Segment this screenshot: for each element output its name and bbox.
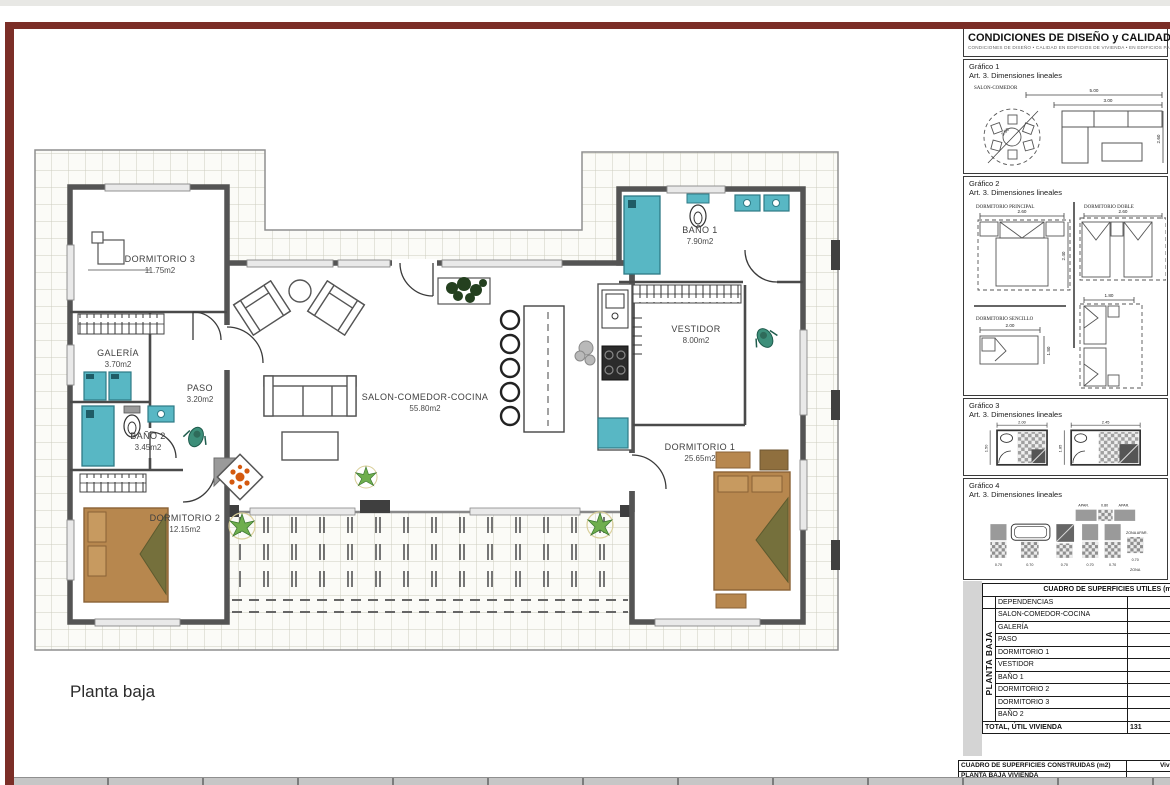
sofa — [264, 376, 356, 416]
room-area-vestidor: 8.00m2 — [683, 336, 710, 345]
superficies-utiles-table: CUADRO DE SUPERFICIES UTILES (m DEPENDEN… — [982, 583, 1170, 734]
maroon-frame-top — [5, 22, 1170, 29]
room-label-dormitorio2: DORMITORIO 2 — [150, 513, 221, 523]
utiles-total-label: TOTAL, ÚTIL VIVIENDA — [983, 721, 1128, 734]
grafico1-title: Gráfico 1 — [969, 62, 1167, 71]
grafico-3: Gráfico 3 Art. 3. Dimensiones lineales 2… — [963, 398, 1168, 476]
side-table — [289, 280, 311, 302]
grafico-4: Gráfico 4 Art. 3. Dimensiones lineales A… — [963, 478, 1168, 580]
dim-label: 2.00 — [1018, 420, 1026, 424]
room-area-bano1: 7.90m2 — [687, 237, 714, 246]
grafico1-subtitle: Art. 3. Dimensiones lineales — [969, 71, 1167, 80]
dim-label: APAR. — [1078, 503, 1089, 507]
dim-label: 1.80 — [1105, 293, 1114, 298]
dim-label: APAR. — [1119, 503, 1130, 507]
floor-plan: DORMITORIO 3 11.75m2 GALERÍA 3.70m2 PASO… — [0, 0, 963, 785]
utiles-side-label: PLANTA BAJA — [983, 609, 996, 722]
bed-dormitorio1 — [714, 450, 790, 608]
maroon-frame-left — [5, 22, 14, 785]
room-label-bano1: BAÑO 1 — [682, 225, 717, 235]
grafico4-subtitle: Art. 3. Dimensiones lineales — [969, 490, 1167, 499]
dim-label: 5.00 — [1090, 88, 1099, 93]
room-label-dormitorio3: DORMITORIO 3 — [125, 254, 196, 264]
utiles-col-dependencias: DEPENDENCIAS — [996, 596, 1128, 609]
panel-subtitle: CONDICIONES DE DISEÑO • CALIDAD EN EDIFI… — [964, 44, 1167, 50]
grafico1-room-label: SALON-COMEDOR — [974, 86, 1018, 91]
room-area-dormitorio3: 11.75m2 — [145, 266, 176, 275]
dim-label: 2.60 — [1018, 209, 1027, 214]
dim-label: 3.00 — [1104, 98, 1113, 103]
room-area-dormitorio1: 25.65m2 — [684, 454, 716, 463]
room-label-bano2: BAÑO 2 — [130, 431, 165, 441]
stove — [602, 346, 628, 380]
table-row: PASO — [996, 634, 1128, 647]
table-row: DORMITORIO 3 — [996, 696, 1128, 709]
grafico4-drawing: APAR. 0.80 APAR. 0.70 0.70 0.70 0.70 0.7… — [966, 500, 1166, 574]
grafico4-title: Gráfico 4 — [969, 481, 1167, 490]
room-label-vestidor: VESTIDOR — [671, 324, 720, 334]
dim-label: 0.70 — [1109, 563, 1116, 567]
dim-label: 2.45 — [1102, 420, 1110, 424]
dim-label: 0.80 — [1101, 503, 1108, 507]
panel-header: CONDICIONES DE DISEÑO y CALIDAD (DC-0 CO… — [963, 28, 1168, 57]
utiles-col-vivienda: Vivien — [1128, 596, 1170, 609]
grafico2-sencillo-label: DORMITORIO SENCILLO — [976, 317, 1034, 322]
dim-label: 2.40 — [1061, 251, 1066, 260]
porch-pergola — [227, 500, 632, 612]
entrance-planter — [438, 277, 490, 304]
table-row: VESTIDOR — [996, 659, 1128, 672]
scanned-plan-page: DORMITORIO 3 11.75m2 GALERÍA 3.70m2 PASO… — [0, 0, 1170, 785]
kitchen-sink — [602, 290, 628, 328]
dim-label: 1.50 — [984, 444, 989, 452]
dim-label: 0.70 — [995, 563, 1002, 567]
room-area-salon: 55.80m2 — [409, 404, 441, 413]
table-row: DORMITORIO 1 — [996, 646, 1128, 659]
construidas-title: CUADRO DE SUPERFICIES CONSTRUIDAS (m2) — [959, 761, 1127, 772]
grafico2-drawing: DORMITORIO PRINCIPAL 2.60 2.40 DORMITORI… — [966, 198, 1166, 390]
coffee-table — [282, 432, 338, 460]
dim-label: 0.70 — [1026, 563, 1033, 567]
construidas-col-vivienda: Vivie — [1127, 761, 1170, 772]
room-area-dormitorio2: 12.15m2 — [169, 525, 201, 534]
room-area-galeria: 3.70m2 — [105, 360, 132, 369]
table-row: SALON-COMEDOR-COCINA — [996, 609, 1128, 622]
dim-label: 1.80 — [1046, 346, 1051, 355]
grafico-2: Gráfico 2 Art. 3. Dimensiones lineales D… — [963, 176, 1168, 396]
dim-label: 2.60 — [1156, 134, 1161, 143]
dishwasher — [598, 418, 628, 448]
grafico3-title: Gráfico 3 — [969, 401, 1167, 410]
page-top-strip — [0, 0, 1170, 6]
table-row: BAÑO 2 — [996, 709, 1128, 722]
room-area-bano2: 3.45m2 — [135, 443, 162, 452]
grafico-1: Gráfico 1 Art. 3. Dimensiones lineales S… — [963, 59, 1168, 174]
dim-label: 2.00 — [1006, 323, 1015, 328]
table-gutter — [963, 581, 982, 756]
table-row: GALERÍA — [996, 621, 1128, 634]
grafico2-title: Gráfico 2 — [969, 179, 1167, 188]
room-area-paso: 3.20m2 — [187, 395, 214, 404]
table-row: DORMITORIO 2 — [996, 684, 1128, 697]
table-row: BAÑO 1 — [996, 671, 1128, 684]
dim-label: 1.85 — [1058, 444, 1063, 452]
utiles-title: CUADRO DE SUPERFICIES UTILES (m — [983, 584, 1170, 597]
room-label-galeria: GALERÍA — [97, 348, 139, 358]
bottom-ruler-strip — [14, 777, 1170, 785]
grafico2-subtitle: Art. 3. Dimensiones lineales — [969, 188, 1167, 197]
panel-title: CONDICIONES DE DISEÑO y CALIDAD (DC-0 — [964, 29, 1167, 44]
dim-label: 0.70 — [1132, 558, 1139, 562]
dim-label: ZONA — [1130, 568, 1141, 572]
dim-label: ZONA APAR. — [1126, 531, 1148, 535]
dim-label: 0.70 — [1087, 563, 1094, 567]
room-label-salon: SALON-COMEDOR-COCINA — [362, 392, 489, 402]
utiles-total-value: 131 — [1128, 721, 1170, 734]
kitchen-island — [524, 306, 564, 432]
dim-label: 0.70 — [1061, 563, 1068, 567]
right-panel: CONDICIONES DE DISEÑO y CALIDAD (DC-0 CO… — [963, 28, 1170, 785]
dim-label: 2.60 — [1119, 209, 1128, 214]
grafico1-drawing: SALON-COMEDOR 5.00 3.00 2.50 — [966, 81, 1166, 171]
room-label-dormitorio1: DORMITORIO 1 — [665, 442, 736, 452]
grafico3-drawing: 2.00 1.50 2.45 1.85 — [966, 420, 1166, 470]
grafico3-subtitle: Art. 3. Dimensiones lineales — [969, 410, 1167, 419]
room-label-paso: PASO — [187, 383, 213, 393]
plan-caption: Planta baja — [70, 682, 156, 701]
